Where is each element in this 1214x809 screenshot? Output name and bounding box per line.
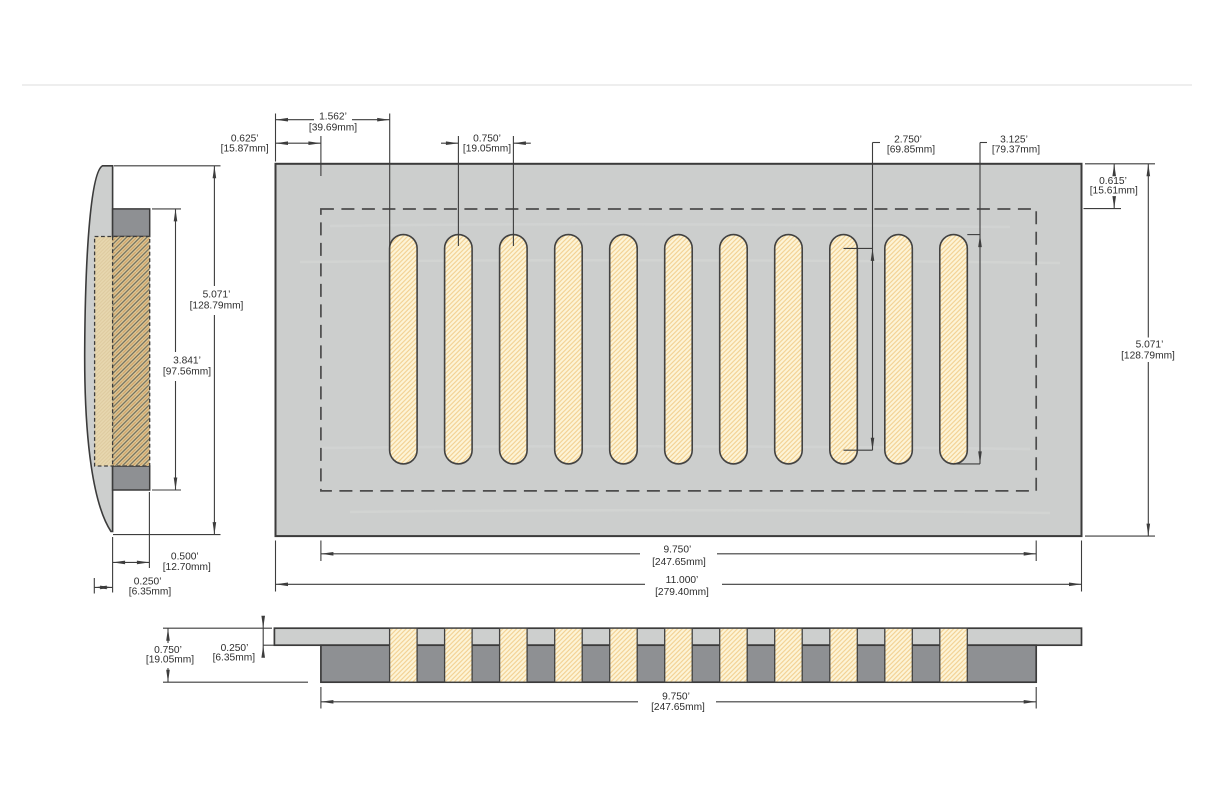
svg-text:[79.37mm]: [79.37mm] [992,145,1040,156]
svg-text:[19.05mm]: [19.05mm] [463,143,511,154]
svg-text:1.562’: 1.562’ [319,112,347,123]
svg-text:[128.79mm]: [128.79mm] [1121,350,1175,361]
svg-text:[6.35mm]: [6.35mm] [213,652,256,663]
svg-text:5.071’: 5.071’ [1136,339,1164,350]
svg-text:[128.79mm]: [128.79mm] [190,301,244,312]
svg-text:9.750’: 9.750’ [662,692,690,703]
svg-text:[12.70mm]: [12.70mm] [163,562,211,573]
svg-text:[69.85mm]: [69.85mm] [887,145,935,156]
svg-text:[247.65mm]: [247.65mm] [651,702,705,713]
svg-text:[39.69mm]: [39.69mm] [309,122,357,133]
svg-text:[97.56mm]: [97.56mm] [163,367,211,378]
svg-text:9.750’: 9.750’ [664,545,692,556]
svg-text:[6.35mm]: [6.35mm] [129,586,172,597]
svg-text:3.841’: 3.841’ [173,356,201,367]
svg-text:11.000’: 11.000’ [666,575,699,586]
svg-text:[279.40mm]: [279.40mm] [655,587,709,598]
svg-text:[15.61mm]: [15.61mm] [1090,186,1138,197]
svg-text:[15.87mm]: [15.87mm] [221,143,269,154]
svg-text:[19.05mm]: [19.05mm] [146,655,194,666]
svg-text:[247.65mm]: [247.65mm] [652,557,706,568]
svg-text:5.071’: 5.071’ [203,290,231,301]
